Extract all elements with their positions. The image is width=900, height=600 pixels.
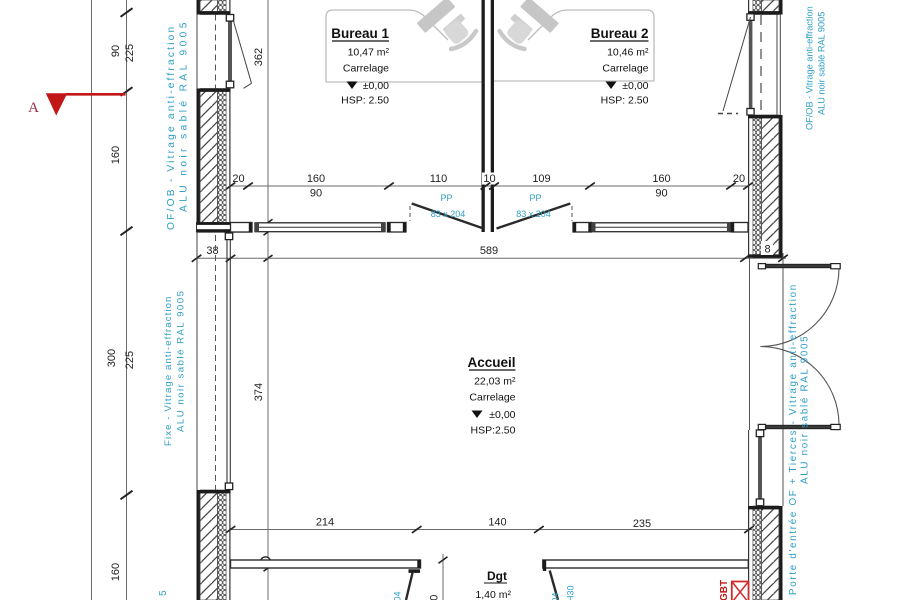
svg-text:ALU noir sablé RAL 9005: ALU noir sablé RAL 9005 [179,19,190,212]
svg-text:ALU noir sablé RAL 9005: ALU noir sablé RAL 9005 [176,290,187,432]
svg-text:5: 5 [158,590,169,596]
svg-text:HSP:2.50: HSP:2.50 [471,425,516,437]
svg-text:362: 362 [253,48,265,66]
svg-text:±0,00: ±0,00 [622,80,648,92]
svg-text:38: 38 [206,245,218,257]
svg-text:A: A [28,100,39,116]
svg-text:1,40 m²: 1,40 m² [475,589,511,600]
svg-text:20: 20 [733,173,745,185]
svg-text:PP: PP [440,193,452,203]
svg-text:160: 160 [110,563,122,581]
svg-text:22,03 m²: 22,03 m² [474,376,516,388]
svg-text:140: 140 [429,595,441,600]
svg-text:90: 90 [655,188,667,200]
svg-text:160: 160 [652,173,670,185]
svg-text:HSP: 2.50: HSP: 2.50 [341,95,389,107]
svg-text:225: 225 [124,44,136,62]
svg-text:374: 374 [253,383,265,401]
svg-text:160: 160 [110,146,122,164]
svg-text:140: 140 [488,517,506,529]
svg-text:Carrelage: Carrelage [602,63,648,75]
svg-text:Porte d'entrée OF + Tierces -: Porte d'entrée OF + Tierces - Vitrage an… [788,283,799,595]
svg-text:Fixe - Vitrage anti-effraction: Fixe - Vitrage anti-effraction [163,296,174,447]
svg-text:Bureau 2: Bureau 2 [591,26,649,41]
svg-text:H30: H30 [566,585,576,600]
svg-text:OF/OB - Vitrage anti-effractio: OF/OB - Vitrage anti-effraction [805,6,815,130]
svg-text:589: 589 [480,245,498,257]
svg-text:ALU noir sablé RAL 9005: ALU noir sablé RAL 9005 [817,12,827,115]
svg-text:20: 20 [232,173,244,185]
svg-text:90: 90 [310,188,322,200]
svg-text:83 x 204: 83 x 204 [551,592,561,600]
svg-text:235: 235 [633,518,651,530]
svg-text:83 x 204: 83 x 204 [431,209,466,219]
svg-text:90: 90 [110,45,122,57]
svg-text:110: 110 [430,173,448,185]
svg-text:Dgt: Dgt [487,569,507,583]
svg-text:160: 160 [307,173,325,185]
svg-text:Bureau 1: Bureau 1 [331,26,389,41]
svg-text:PP: PP [529,193,541,203]
svg-text:Accueil: Accueil [467,355,515,370]
svg-text:8: 8 [764,244,770,256]
svg-text:Carrelage: Carrelage [343,63,389,75]
svg-text:Carrelage: Carrelage [469,392,515,404]
svg-text:10,46 m²: 10,46 m² [607,47,649,59]
svg-text:225: 225 [124,351,136,369]
svg-text:GBT: GBT [719,580,730,600]
svg-text:10,47 m²: 10,47 m² [348,47,390,59]
svg-text:ALU noir sablé RAL 9005: ALU noir sablé RAL 9005 [800,335,811,484]
svg-text:83 x 204: 83 x 204 [393,591,403,600]
svg-text:214: 214 [316,517,334,529]
svg-text:HSP: 2.50: HSP: 2.50 [601,95,649,107]
svg-text:±0,00: ±0,00 [363,80,389,92]
svg-text:OF/OB - Vitrage anti-effractio: OF/OB - Vitrage anti-effraction [166,25,177,230]
svg-text:300: 300 [106,349,118,367]
svg-text:109: 109 [532,173,550,185]
svg-text:±0,00: ±0,00 [489,409,515,421]
svg-text:83 x 204: 83 x 204 [516,209,551,219]
